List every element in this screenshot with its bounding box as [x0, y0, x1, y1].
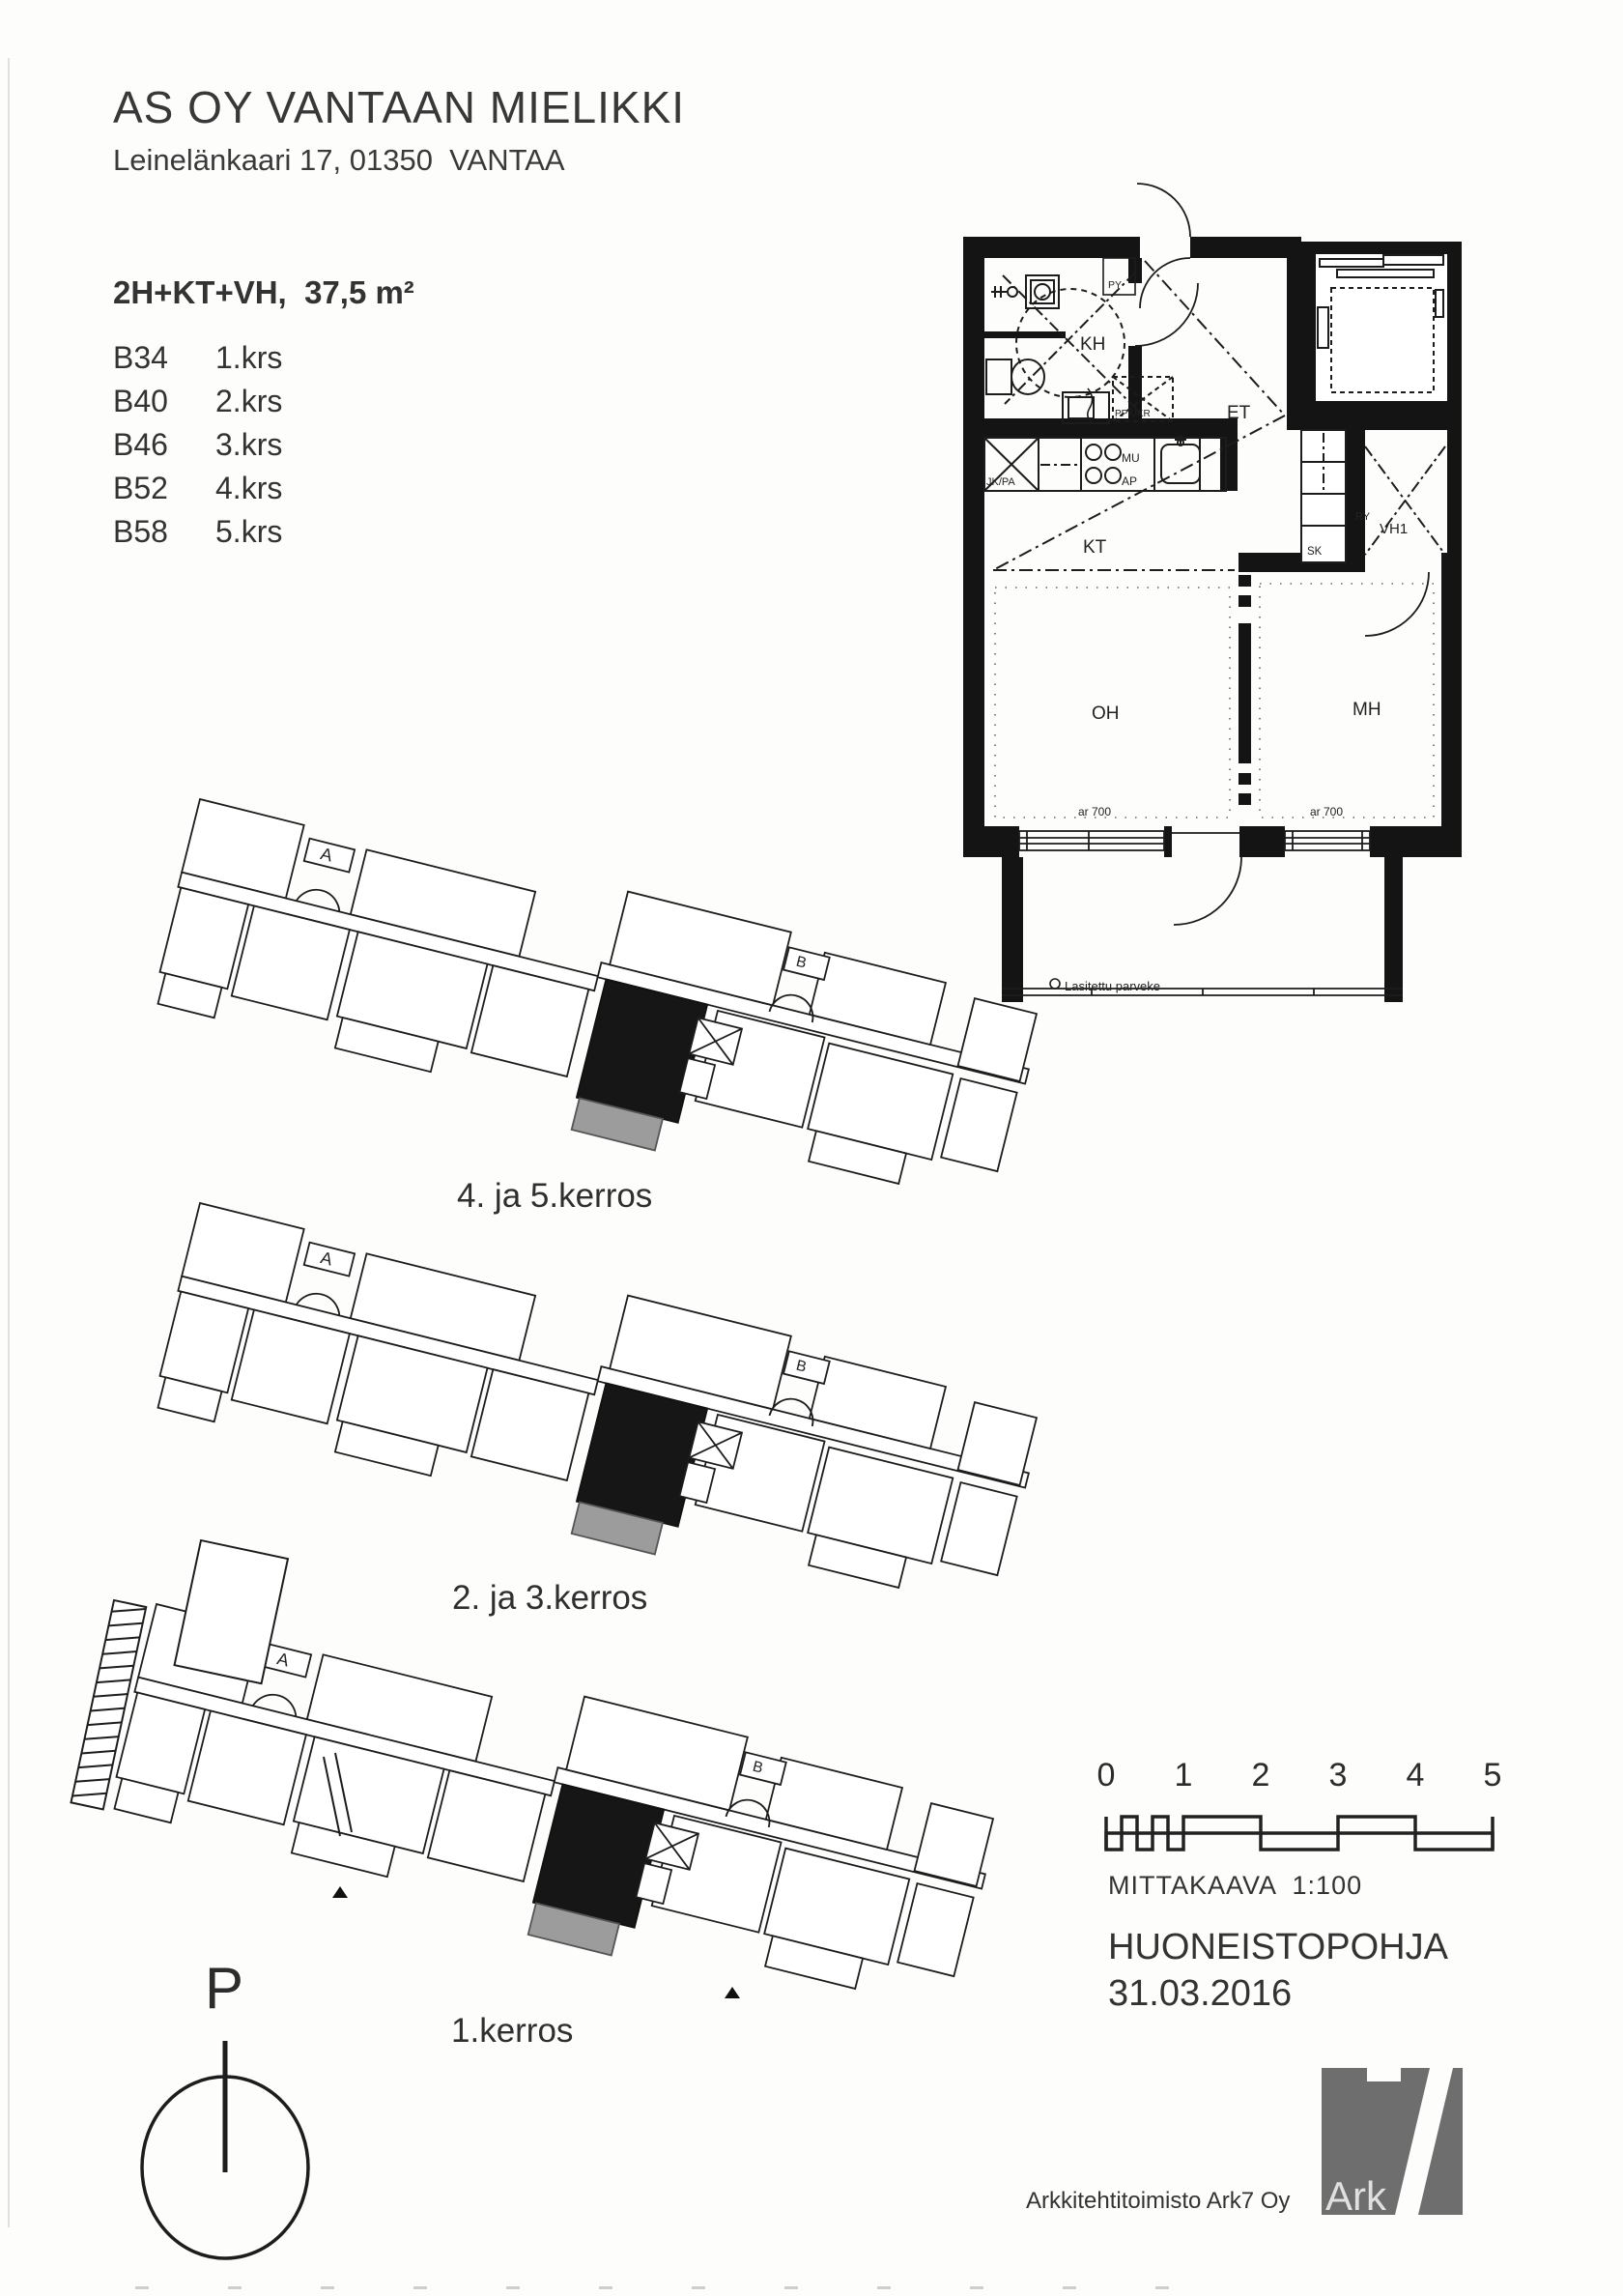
label-sk: SK — [1307, 546, 1323, 558]
shower-icon — [1008, 287, 1017, 297]
window-mh — [1285, 831, 1370, 850]
page-title: AS OY VANTAAN MIELIKKI — [113, 81, 685, 133]
sk-closet — [1301, 430, 1346, 562]
unit-floor: 4.krs — [215, 471, 282, 505]
svg-text:5: 5 — [1484, 1757, 1502, 1794]
ark7-logo: Ark — [1322, 2068, 1463, 2215]
unit-id: B58 — [113, 510, 215, 554]
kitchen-counter — [984, 435, 1226, 491]
unit-id: B40 — [113, 380, 215, 423]
room-label-vh1: VH1 — [1380, 521, 1408, 537]
list-item: B524.krs — [113, 467, 282, 510]
list-item: B341.krs — [113, 336, 282, 380]
label-py: PY — [1108, 279, 1122, 291]
toilet-icon — [986, 359, 1011, 394]
unit-floor: 2.krs — [215, 384, 282, 418]
site-plan-label-4-5: 4. ja 5.kerros — [457, 1177, 652, 1216]
label-mu: MU — [1122, 451, 1140, 465]
unit-id: B46 — [113, 423, 215, 467]
svg-text:3: 3 — [1329, 1757, 1348, 1794]
apartment-type-area: 2H+KT+VH, 37,5 m² — [113, 274, 414, 311]
stove-icon — [1086, 445, 1101, 460]
list-item: B463.krs — [113, 423, 282, 467]
scale-bar-ticks: 0 1 2 3 4 5 — [1097, 1757, 1502, 1794]
unit-list: B341.krs B402.krs B463.krs B524.krs B585… — [113, 336, 282, 554]
label-ppkkr: PPK/KR — [1115, 409, 1151, 419]
svg-text:4: 4 — [1407, 1757, 1425, 1794]
svg-text:2: 2 — [1252, 1757, 1270, 1794]
unit-id: B52 — [113, 467, 215, 510]
drawing-type: HUONEISTOPOHJA — [1108, 1927, 1448, 1968]
scale-caption: MITTAKAAVA 1:100 — [1108, 1871, 1362, 1901]
door-arc — [1365, 572, 1429, 636]
compass-north-label: P — [205, 1956, 243, 2021]
unit-floor: 5.krs — [215, 514, 282, 549]
logo-text: Ark — [1325, 2173, 1387, 2219]
list-item: B402.krs — [113, 380, 282, 423]
architect-firm: Arkkitehtitoimisto Ark7 Oy — [1026, 2188, 1290, 2215]
site-plan-label-1: 1.kerros — [451, 2012, 573, 2051]
compass-icon: P — [142, 1956, 308, 2258]
bathroom-door-arc — [1135, 283, 1198, 346]
room-label-kh: KH — [1080, 334, 1105, 355]
address-line: Leinelänkaari 17, 01350 VANTAA — [113, 143, 565, 178]
site-plans: A B — [0, 734, 1101, 2296]
svg-text:1: 1 — [1175, 1757, 1193, 1794]
label-ry: RY — [1355, 511, 1371, 523]
label-jkpa: JK/PA — [986, 476, 1015, 488]
scale-bar-bar — [1106, 1817, 1493, 1850]
room-label-mh: MH — [1352, 700, 1381, 720]
room-label-kt: KT — [1083, 537, 1107, 558]
list-item: B585.krs — [113, 510, 282, 554]
room-label-et: ET — [1227, 403, 1251, 423]
scale-bar: 0 1 2 3 4 5 — [1087, 1757, 1512, 1863]
svg-text:0: 0 — [1097, 1757, 1116, 1794]
site-plan-label-2-3: 2. ja 3.kerros — [452, 1579, 647, 1618]
label-ap: AP — [1122, 474, 1137, 488]
drawing-sheet: AS OY VANTAAN MIELIKKI Leinelänkaari 17,… — [0, 0, 1623, 2296]
balcony-door-arc — [1174, 857, 1241, 925]
vh1-closet-room — [1365, 446, 1445, 636]
room-label-oh: OH — [1092, 703, 1120, 724]
unit-id: B34 — [113, 336, 215, 380]
drawing-date: 31.03.2016 — [1108, 1973, 1292, 2015]
elevator-shaft — [1316, 254, 1447, 401]
sill-note-2: ar 700 — [1310, 805, 1343, 818]
unit-floor: 3.krs — [215, 427, 282, 462]
unit-floor: 1.krs — [215, 340, 282, 375]
site-plan-floor-4-5 — [144, 786, 1047, 1233]
entrance-door-arc — [1137, 184, 1190, 237]
